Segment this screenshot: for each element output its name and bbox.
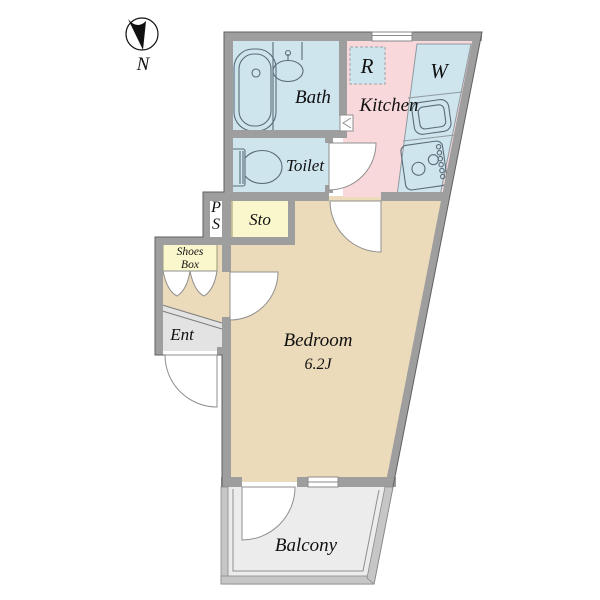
kitchen-label: Kitchen xyxy=(358,95,418,116)
bath-door xyxy=(340,115,353,131)
toilet-label: Toilet xyxy=(286,156,325,175)
balcony-label: Balcony xyxy=(275,535,338,556)
entrance-door xyxy=(165,355,217,407)
floor-plan-canvas: N Bath Kitchen Toilet R W P S Sto Shoes … xyxy=(0,0,600,600)
floor-plan: N Bath Kitchen Toilet R W P S Sto Shoes … xyxy=(0,0,600,600)
washer-space-label: W xyxy=(430,59,450,83)
storage-label: Sto xyxy=(249,210,271,229)
bedroom-window xyxy=(308,477,338,487)
compass: N xyxy=(126,18,158,75)
refrigerator-space-label: R xyxy=(360,54,374,78)
bedroom-size-label: 6.2J xyxy=(304,356,332,373)
compass-north-label: N xyxy=(136,54,151,75)
bath-label: Bath xyxy=(295,87,331,108)
bedroom-label: Bedroom xyxy=(284,330,353,351)
shoes-box-label-line2: Box xyxy=(181,259,200,271)
kitchen-window xyxy=(372,32,412,41)
pipe-space-label-line1: P xyxy=(210,199,221,216)
pipe-space-label-line2: S xyxy=(212,216,220,233)
shoes-box-label-line1: Shoes xyxy=(177,246,204,258)
entrance-label: Ent xyxy=(169,325,195,344)
